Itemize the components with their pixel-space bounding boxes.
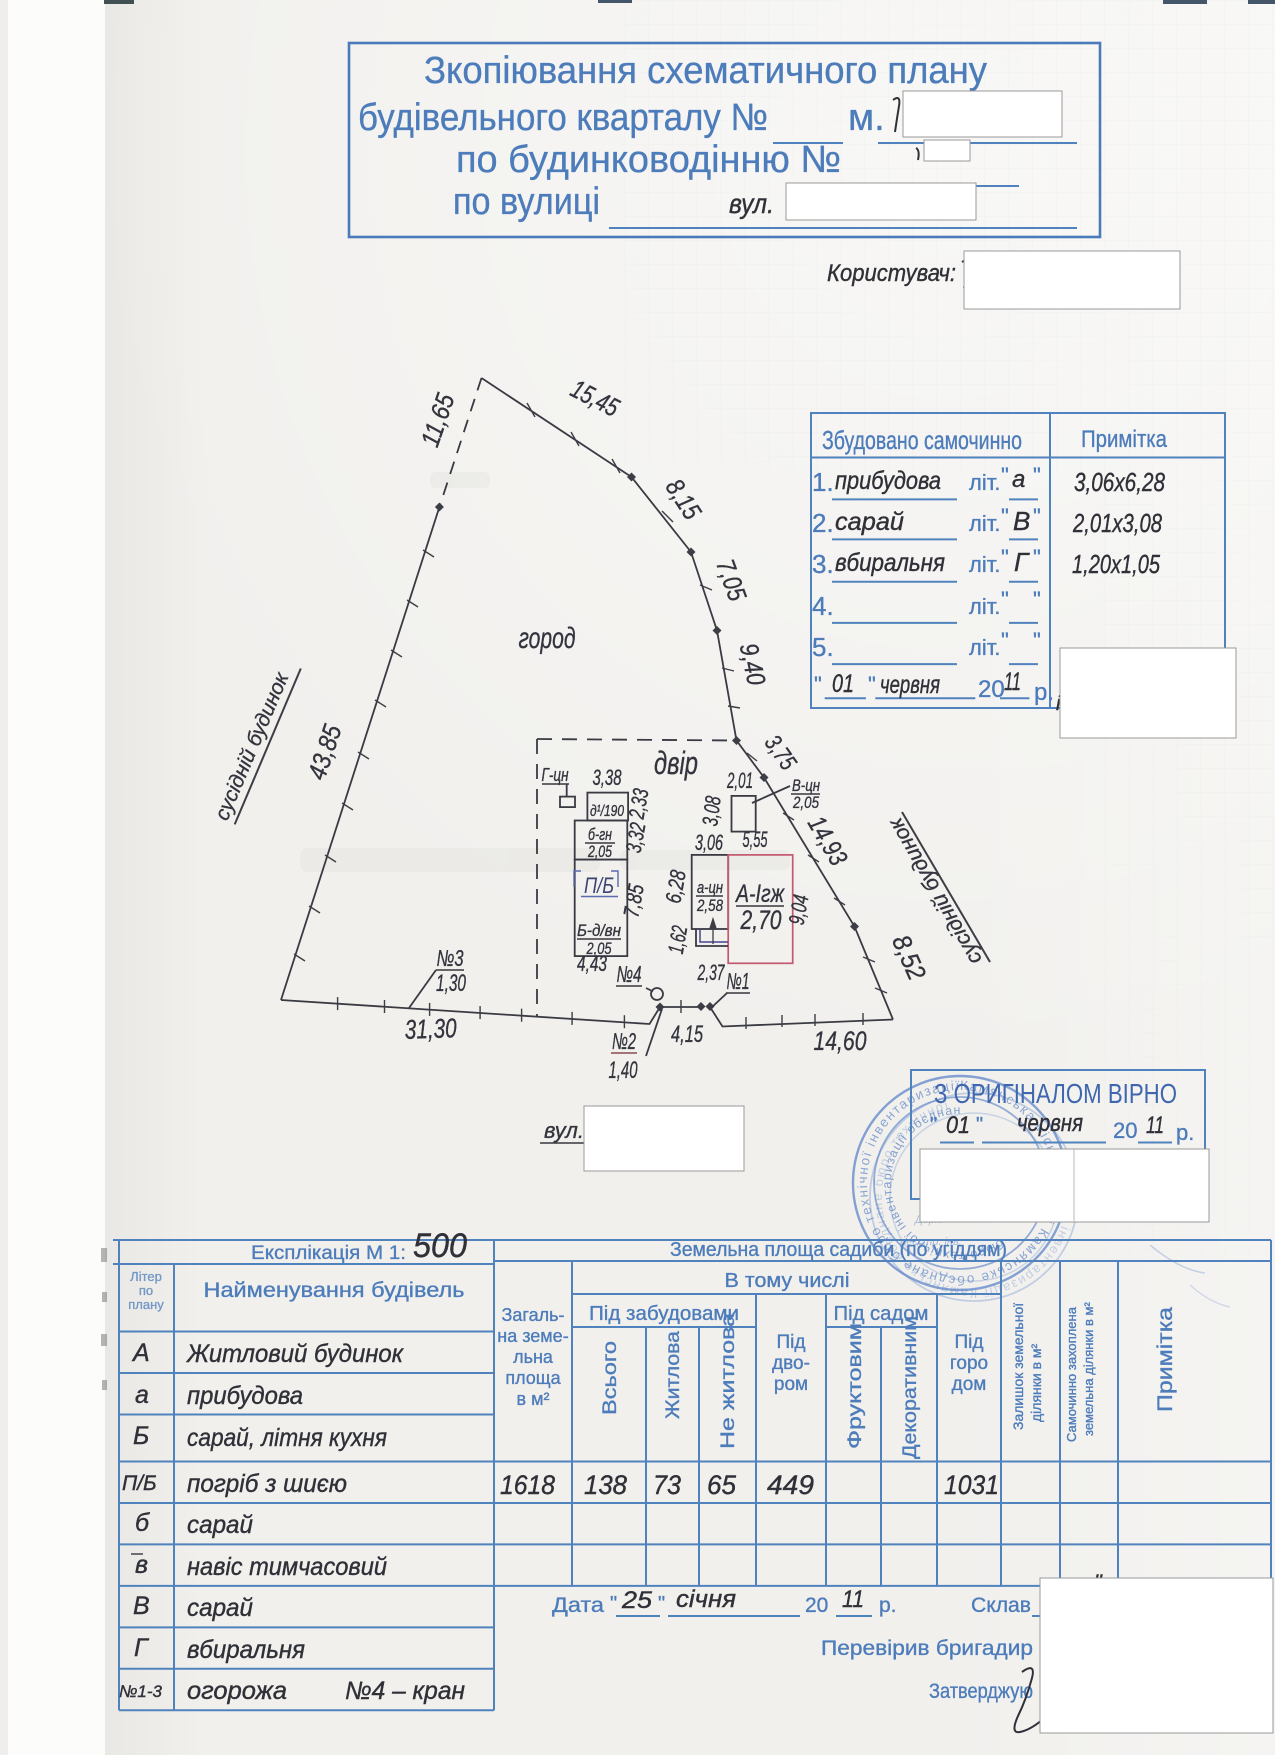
svg-text:2,01х3,08: 2,01х3,08 xyxy=(1072,508,1162,538)
svg-text:літ.: літ. xyxy=(969,594,1000,619)
svg-text:а: а xyxy=(135,1381,149,1409)
svg-text:25: 25 xyxy=(621,1587,653,1614)
svg-text:": " xyxy=(1033,545,1041,570)
svg-text:В: В xyxy=(1013,506,1030,536)
svg-text:ділянки в м²: ділянки в м² xyxy=(1028,1343,1044,1422)
svg-text:погріб з шиєю: погріб з шиєю xyxy=(187,1470,347,1498)
svg-text:по: по xyxy=(139,1283,153,1298)
svg-text:Літер: Літер xyxy=(130,1269,162,1284)
svg-text:Г: Г xyxy=(1014,547,1030,577)
svg-text:2,05: 2,05 xyxy=(587,842,612,861)
svg-text:м.: м. xyxy=(848,97,885,139)
svg-text:ром: ром xyxy=(774,1374,808,1395)
svg-text:11: 11 xyxy=(1146,1112,1164,1139)
svg-text:": " xyxy=(868,672,876,697)
svg-text:": " xyxy=(610,1593,617,1615)
svg-text:Перевірив бригадир: Перевірив бригадир xyxy=(821,1637,1033,1660)
svg-text:а: а xyxy=(1012,466,1025,493)
svg-text:": " xyxy=(658,1593,665,1615)
svg-text:січня: січня xyxy=(676,1586,736,1613)
svg-text:": " xyxy=(1001,463,1009,488)
svg-text:Всього: Всього xyxy=(600,1341,621,1415)
svg-text:сарай, літня кухня: сарай, літня кухня xyxy=(187,1424,387,1452)
svg-text:5,55: 5,55 xyxy=(743,827,768,852)
svg-text:№1: №1 xyxy=(727,968,750,994)
svg-text:прибудова: прибудова xyxy=(187,1382,303,1410)
svg-text:3,32: 3,32 xyxy=(621,821,651,855)
svg-text:вул.: вул. xyxy=(729,188,774,219)
svg-text:а-цн: а-цн xyxy=(697,878,723,897)
svg-text:01: 01 xyxy=(832,670,854,698)
svg-text:Житловий будинок: Житловий будинок xyxy=(185,1340,404,1368)
svg-text:14,60: 14,60 xyxy=(814,1026,867,1056)
svg-text:1031: 1031 xyxy=(944,1470,999,1500)
svg-text:1,62: 1,62 xyxy=(663,924,692,956)
svg-text:": " xyxy=(1033,463,1041,488)
svg-text:2,05: 2,05 xyxy=(792,793,819,812)
svg-text:В: В xyxy=(133,1592,150,1620)
svg-text:11: 11 xyxy=(842,1586,864,1613)
svg-text:20: 20 xyxy=(1113,1118,1137,1143)
svg-text:3,38: 3,38 xyxy=(593,765,623,790)
svg-text:А: А xyxy=(131,1339,150,1367)
svg-text:": " xyxy=(1001,587,1009,612)
svg-text:р.: р. xyxy=(879,1594,897,1617)
svg-text:Склав: Склав xyxy=(971,1594,1031,1617)
svg-text:Експлікація М 1:: Експлікація М 1: xyxy=(251,1243,406,1264)
svg-text:4,15: 4,15 xyxy=(671,1021,703,1048)
svg-text:вбиральня: вбиральня xyxy=(187,1636,305,1664)
svg-text:1,30: 1,30 xyxy=(436,970,466,997)
svg-text:31,30: 31,30 xyxy=(404,1013,457,1045)
svg-text:11: 11 xyxy=(1004,668,1021,696)
svg-text:б: б xyxy=(135,1509,150,1537)
svg-text:дво-: дво- xyxy=(772,1353,810,1374)
svg-text:2,37: 2,37 xyxy=(697,960,725,985)
svg-text:Примітка: Примітка xyxy=(1154,1307,1177,1412)
svg-text:Г-цн: Г-цн xyxy=(542,765,569,785)
svg-text:65: 65 xyxy=(707,1470,737,1500)
svg-text:Затверджую: Затверджую xyxy=(929,1680,1033,1703)
svg-text:": " xyxy=(1001,504,1009,529)
svg-text:Найменування будівель: Найменування будівель xyxy=(204,1279,465,1302)
svg-text:2,33: 2,33 xyxy=(624,786,654,821)
svg-text:": " xyxy=(976,1114,983,1136)
svg-text:449: 449 xyxy=(767,1470,814,1500)
svg-text:20: 20 xyxy=(978,676,1005,703)
svg-text:р.: р. xyxy=(1176,1120,1194,1145)
svg-text:П/Б: П/Б xyxy=(584,873,614,898)
svg-text:": " xyxy=(1033,587,1041,612)
svg-text:Користувач:: Користувач: xyxy=(827,260,956,287)
svg-text:вбиральня: вбиральня xyxy=(835,549,945,577)
svg-text:Декоративним: Декоративним xyxy=(900,1316,921,1459)
svg-text:": " xyxy=(930,1114,937,1136)
svg-text:№2: №2 xyxy=(612,1028,636,1054)
svg-text:П/Б: П/Б xyxy=(122,1472,157,1495)
svg-text:прибудова: прибудова xyxy=(835,467,941,495)
svg-text:земельна ділянки в м²: земельна ділянки в м² xyxy=(1081,1302,1096,1436)
svg-text:2.: 2. xyxy=(812,508,834,538)
svg-text:": " xyxy=(1001,545,1009,570)
svg-text:Під забудовами: Під забудовами xyxy=(589,1303,739,1325)
svg-text:138: 138 xyxy=(584,1470,627,1500)
svg-text:А-Ігж: А-Ігж xyxy=(734,880,785,908)
svg-text:": " xyxy=(1033,504,1041,529)
svg-text:літ.: літ. xyxy=(969,470,1000,495)
svg-text:в м²: в м² xyxy=(517,1389,550,1409)
svg-text:навіс тимчасовий: навіс тимчасовий xyxy=(187,1553,387,1581)
svg-text:двір: двір xyxy=(654,745,698,781)
svg-text:": " xyxy=(1001,628,1009,653)
svg-text:500: 500 xyxy=(413,1227,467,1265)
svg-text:20: 20 xyxy=(805,1594,828,1617)
svg-text:Під: Під xyxy=(777,1332,806,1353)
svg-text:З ОРИГІНАЛОМ ВІРНО: З ОРИГІНАЛОМ ВІРНО xyxy=(934,1078,1177,1109)
svg-text:дом: дом xyxy=(952,1374,987,1395)
svg-text:1618: 1618 xyxy=(500,1470,555,1500)
svg-text:2,58: 2,58 xyxy=(696,896,723,915)
svg-text:4.: 4. xyxy=(812,591,834,621)
svg-text:льна: льна xyxy=(513,1347,554,1367)
svg-text:огорожа: огорожа xyxy=(187,1677,287,1705)
svg-text:площа: площа xyxy=(505,1368,561,1388)
svg-text:д¹/190: д¹/190 xyxy=(590,803,624,820)
svg-text:сарай: сарай xyxy=(187,1594,253,1622)
svg-text:№1-3: №1-3 xyxy=(119,1682,163,1701)
svg-text:літ.: літ. xyxy=(969,635,1000,660)
svg-text:в: в xyxy=(135,1551,148,1579)
svg-text:на земе-: на земе- xyxy=(497,1326,568,1346)
svg-text:3.: 3. xyxy=(812,549,834,579)
svg-text:№4 – кран: №4 – кран xyxy=(345,1677,465,1705)
svg-text:3,06х6,28: 3,06х6,28 xyxy=(1074,467,1165,497)
svg-text:В тому числі: В тому числі xyxy=(725,1270,850,1292)
svg-text:Під: Під xyxy=(955,1332,984,1353)
svg-text:Залишок земельної: Залишок земельної xyxy=(1010,1303,1026,1430)
svg-text:літ.: літ. xyxy=(969,552,1000,577)
svg-text:Житлова: Житлова xyxy=(663,1331,684,1419)
svg-text:червня: червня xyxy=(1017,1110,1083,1137)
svg-text:№3: №3 xyxy=(437,945,464,971)
svg-text:город: город xyxy=(519,622,576,655)
svg-text:№4: №4 xyxy=(617,961,642,987)
svg-text:будівельного кварталу №: будівельного кварталу № xyxy=(358,97,768,139)
svg-text:червня: червня xyxy=(880,671,940,699)
svg-text:Земельна площа садиби (по угід: Земельна площа садиби (по угіддям) xyxy=(670,1239,1007,1261)
svg-text:": " xyxy=(814,672,822,697)
svg-text:плану: плану xyxy=(128,1297,164,1312)
svg-text:": " xyxy=(1033,628,1041,653)
svg-text:Зкопіювання схематичного плану: Зкопіювання схематичного плану xyxy=(424,50,987,92)
svg-text:Не житлова: Не житлова xyxy=(718,1312,739,1449)
svg-text:9,04: 9,04 xyxy=(784,893,814,927)
svg-text:2,70: 2,70 xyxy=(740,905,782,935)
svg-text:по вулиці: по вулиці xyxy=(453,181,600,223)
svg-text:Збудовано самочинно: Збудовано самочинно xyxy=(822,425,1022,455)
svg-text:01: 01 xyxy=(946,1112,970,1139)
svg-text:Самочинно захоплена: Самочинно захоплена xyxy=(1064,1306,1079,1442)
svg-text:р.: р. xyxy=(1034,679,1054,706)
svg-text:сарай: сарай xyxy=(187,1511,253,1539)
svg-text:5.: 5. xyxy=(812,632,834,662)
svg-text:1.: 1. xyxy=(812,467,834,497)
svg-text:Примітка: Примітка xyxy=(1081,426,1168,453)
svg-text:3,08: 3,08 xyxy=(697,794,726,827)
svg-text:2,05: 2,05 xyxy=(586,939,612,958)
svg-text:Фруктовим: Фруктовим xyxy=(845,1323,866,1449)
svg-text:3,06: 3,06 xyxy=(695,830,723,855)
svg-text:горо: горо xyxy=(950,1353,988,1374)
svg-text:Б-д/вн: Б-д/вн xyxy=(577,921,622,940)
svg-text:Г: Г xyxy=(134,1634,150,1662)
svg-text:Загаль-: Загаль- xyxy=(502,1305,565,1325)
svg-text:сарай: сарай xyxy=(835,508,904,536)
svg-text:вул.: вул. xyxy=(544,1118,584,1143)
svg-text:Б: Б xyxy=(133,1422,149,1450)
svg-text:1,20х1,05: 1,20х1,05 xyxy=(1072,549,1160,579)
svg-text:Дата: Дата xyxy=(552,1594,604,1617)
svg-text:1,40: 1,40 xyxy=(609,1057,638,1084)
svg-text:2,01: 2,01 xyxy=(726,768,753,793)
svg-text:73: 73 xyxy=(653,1470,681,1500)
svg-text:літ.: літ. xyxy=(969,511,1000,536)
svg-text:по будинководінню №: по будинководінню № xyxy=(456,139,841,181)
